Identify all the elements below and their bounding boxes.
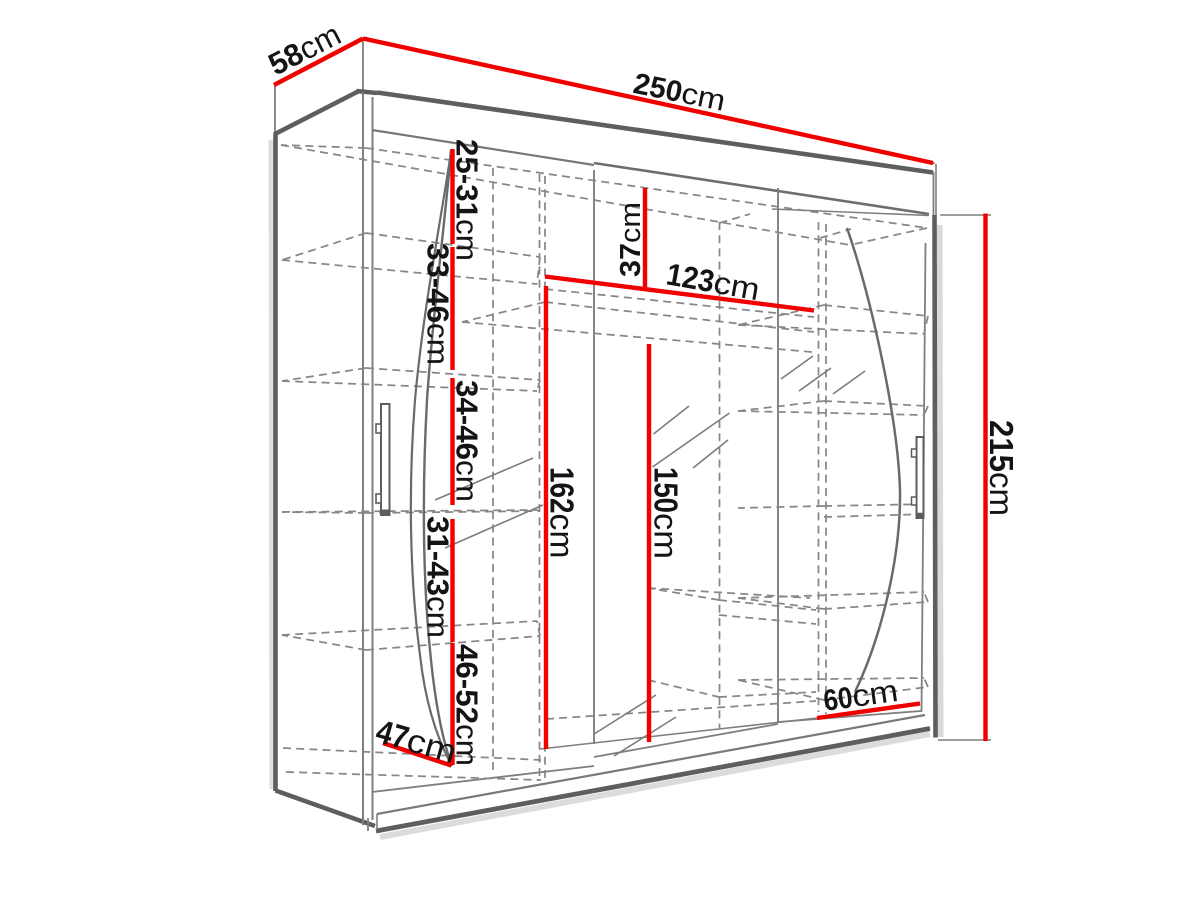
svg-text:215cm: 215cm: [983, 420, 1020, 516]
svg-text:150cm: 150cm: [648, 467, 685, 559]
svg-text:33-46cm: 33-46cm: [421, 243, 456, 365]
svg-text:34-46cm: 34-46cm: [450, 380, 485, 502]
svg-text:162cm: 162cm: [544, 467, 581, 559]
svg-text:31-43cm: 31-43cm: [421, 516, 456, 638]
svg-text:37cm: 37cm: [615, 202, 647, 277]
